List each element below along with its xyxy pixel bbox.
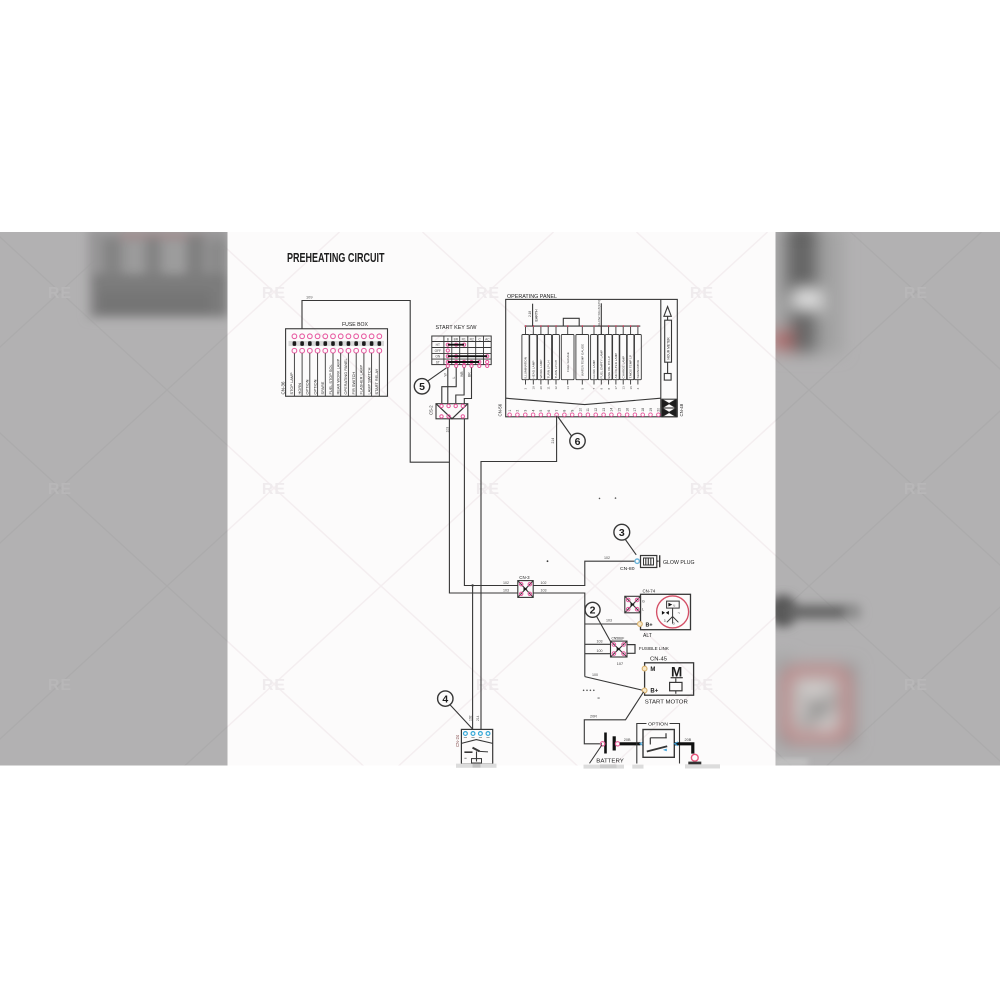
svg-text:20R: 20R: [590, 715, 597, 719]
svg-text:PREHEATING CIRCUIT: PREHEATING CIRCUIT: [287, 250, 385, 265]
svg-text:F/R SWITCH: F/R SWITCH: [351, 372, 356, 395]
svg-text:FLASHER LAMP: FLASHER LAMP: [359, 364, 364, 394]
svg-text:102: 102: [468, 715, 472, 721]
svg-text:3: 3: [524, 410, 528, 412]
svg-text:GLOW LAMP: GLOW LAMP: [592, 360, 596, 379]
svg-text:~: ~: [678, 611, 681, 616]
svg-text:START MOTOR: START MOTOR: [645, 700, 688, 706]
svg-text:16: 16: [629, 386, 633, 390]
svg-text:102: 102: [541, 581, 547, 585]
svg-text:103: 103: [503, 588, 509, 592]
svg-text:ST: ST: [436, 360, 440, 364]
svg-text:2: 2: [516, 410, 520, 412]
svg-text:103: 103: [445, 427, 449, 433]
svg-text:20B: 20B: [624, 738, 631, 742]
svg-text:CHARGE LAMP: CHARGE LAMP: [621, 356, 625, 379]
svg-text:103: 103: [597, 640, 603, 644]
svg-text:B+: B+: [650, 689, 658, 695]
svg-text:9: 9: [571, 410, 575, 412]
svg-text:ON: ON: [435, 355, 440, 359]
svg-text:OPTION: OPTION: [312, 379, 317, 394]
svg-text:ALT: ALT: [643, 633, 652, 639]
svg-text:OPERATING PANEL: OPERATING PANEL: [343, 357, 348, 394]
svg-text:3: 3: [619, 527, 625, 539]
svg-text:CN-56: CN-56: [498, 403, 503, 416]
svg-text:103: 103: [541, 588, 547, 592]
svg-text:4: 4: [531, 410, 535, 412]
svg-text:6: 6: [575, 436, 581, 448]
svg-text:FUSE BOX: FUSE BOX: [342, 322, 369, 328]
svg-text:HORN: HORN: [297, 383, 302, 395]
svg-text:100: 100: [592, 673, 598, 677]
svg-text:20B: 20B: [685, 738, 692, 742]
svg-text:OPTION: OPTION: [305, 379, 310, 394]
svg-text:103: 103: [606, 619, 612, 623]
svg-text:R2: R2: [470, 337, 474, 341]
svg-text:EARTH: EARTH: [535, 309, 539, 322]
svg-text:FUEL EMPTY LAMP: FUEL EMPTY LAMP: [600, 350, 604, 379]
svg-text:20: 20: [657, 408, 661, 412]
svg-text:4: 4: [442, 693, 448, 705]
svg-text:WORK LAMP: WORK LAMP: [539, 360, 543, 379]
svg-text:107: 107: [617, 662, 623, 666]
svg-text:3: 3: [664, 619, 666, 623]
svg-text:BR: BR: [454, 337, 459, 341]
svg-text:GLOW SIG.B(12V): GLOW SIG.B(12V): [597, 300, 601, 326]
svg-text:12: 12: [554, 386, 558, 390]
svg-text:R1: R1: [462, 337, 466, 341]
svg-text:BR: BR: [467, 372, 471, 377]
svg-text:AC: AC: [485, 337, 490, 341]
svg-text:G: G: [642, 599, 645, 603]
svg-text:CS-2: CS-2: [428, 405, 433, 415]
svg-text:SEPARATOR: SEPARATOR: [636, 359, 640, 378]
svg-text:11: 11: [546, 386, 550, 389]
svg-text:TURN LP RH: TURN LP RH: [554, 360, 558, 379]
svg-text:u: u: [674, 604, 676, 608]
svg-text:CN-3: CN-3: [519, 575, 530, 580]
svg-text:T.MOS TEMP LP: T.MOS TEMP LP: [629, 355, 633, 378]
svg-text:AIR FILTER LAMP: AIR FILTER LAMP: [614, 353, 618, 379]
svg-text:OPTION: OPTION: [648, 721, 668, 726]
svg-text:16: 16: [625, 408, 629, 412]
svg-text:5: 5: [419, 381, 425, 393]
svg-text:102: 102: [503, 581, 509, 585]
svg-text:19: 19: [649, 408, 653, 412]
svg-text:15: 15: [618, 408, 622, 412]
svg-text:CN58UF: CN58UF: [612, 637, 625, 641]
svg-text:OFF: OFF: [435, 349, 441, 353]
svg-text:HOUR METER: HOUR METER: [667, 337, 671, 360]
svg-text:12: 12: [594, 408, 598, 412]
svg-text:FUEL STOP SOL: FUEL STOP SOL: [328, 363, 333, 394]
svg-text:CN-48: CN-48: [679, 403, 684, 416]
svg-text:20: 20: [539, 386, 543, 390]
svg-text:WATER TEMP GAUGE: WATER TEMP GAUGE: [580, 344, 584, 376]
svg-text:214: 214: [476, 715, 480, 721]
svg-text:TURN LP LH: TURN LP LH: [546, 361, 550, 379]
svg-text:19: 19: [532, 386, 536, 390]
svg-text:13: 13: [621, 386, 625, 390]
svg-text:2.18: 2.18: [528, 311, 532, 317]
svg-text:1: 1: [508, 410, 512, 412]
svg-text:STOP LAMP: STOP LAMP: [289, 372, 294, 395]
svg-text:B: B: [447, 337, 449, 341]
svg-text:ENG OIL P.S LP: ENG OIL P.S LP: [607, 356, 611, 379]
svg-text:14: 14: [566, 386, 570, 390]
svg-text:START RELAY: START RELAY: [374, 368, 379, 394]
svg-text:2: 2: [590, 605, 596, 617]
svg-text:18: 18: [641, 408, 645, 412]
svg-text:B+: B+: [646, 622, 653, 628]
svg-text:10: 10: [578, 408, 582, 412]
svg-text:HEAD LAMP: HEAD LAMP: [531, 361, 535, 379]
svg-text:L: L: [452, 377, 456, 379]
svg-text:6: 6: [547, 410, 551, 412]
svg-text:WB: WB: [460, 371, 464, 377]
svg-text:LAMP SWITCH: LAMP SWITCH: [366, 367, 371, 394]
svg-text:214: 214: [551, 438, 555, 444]
svg-text:SPARE: SPARE: [320, 381, 325, 394]
svg-text:13: 13: [602, 408, 606, 412]
svg-text:HT: HT: [436, 343, 440, 347]
svg-text:11: 11: [586, 408, 590, 412]
svg-text:7: 7: [555, 410, 559, 412]
svg-text:14: 14: [610, 408, 614, 412]
svg-text:100: 100: [597, 649, 603, 653]
svg-text:5: 5: [539, 410, 543, 412]
svg-text:CN-36: CN-36: [280, 381, 285, 395]
svg-text:L: L: [642, 607, 644, 611]
svg-text:GLOW PLUG: GLOW PLUG: [663, 560, 695, 566]
svg-text:102: 102: [604, 556, 610, 560]
svg-text:BATTERY: BATTERY: [596, 759, 624, 765]
svg-text:8: 8: [563, 410, 567, 412]
svg-text:CN-74: CN-74: [643, 589, 656, 594]
svg-text:CN-24: CN-24: [455, 734, 460, 747]
svg-text:FUSIBLE LINK: FUSIBLE LINK: [639, 646, 669, 651]
svg-text:CN-45: CN-45: [650, 656, 667, 662]
svg-text:FUEL GAUGE: FUEL GAUGE: [566, 352, 570, 372]
svg-text:M: M: [650, 667, 655, 673]
svg-text:17: 17: [633, 408, 637, 412]
svg-text:17: 17: [614, 386, 618, 390]
svg-text:ILLUMINATION: ILLUMINATION: [524, 357, 528, 378]
svg-text:START KEY S/W: START KEY S/W: [436, 325, 477, 331]
svg-text:CN-80: CN-80: [620, 566, 635, 571]
svg-text:REAR WORK LAMP: REAR WORK LAMP: [336, 358, 341, 394]
svg-text:109: 109: [306, 295, 313, 300]
